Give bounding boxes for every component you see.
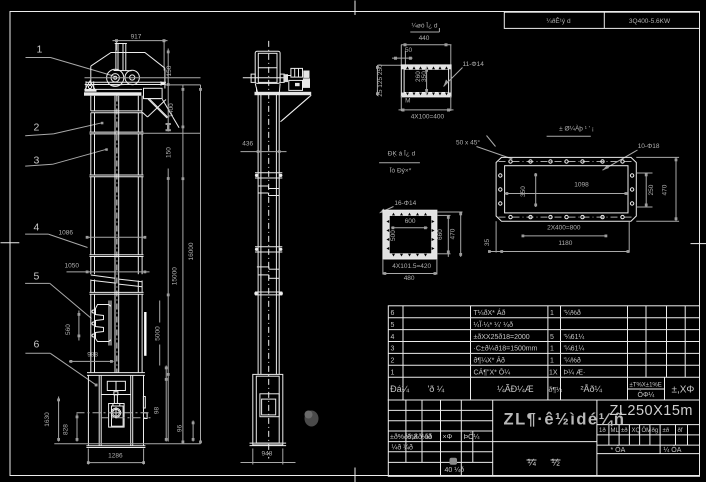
- svg-text:¼: ¼: [528, 457, 537, 469]
- svg-text:4: 4: [391, 334, 395, 341]
- svg-text:828: 828: [63, 424, 70, 435]
- svg-text:350: 350: [520, 186, 527, 197]
- svg-text:XQ: XQ: [632, 428, 641, 434]
- svg-text:T¼ðX* Áð: T¼ðX* Áð: [474, 308, 506, 317]
- svg-text:ZL250X15m: ZL250X15m: [610, 403, 694, 419]
- svg-text:2X400=800: 2X400=800: [547, 225, 581, 232]
- svg-text:2: 2: [34, 122, 40, 134]
- svg-text:'¼61¼: '¼61¼: [564, 346, 585, 353]
- svg-text:±ðXX25ð18=2000: ±ðXX25ð18=2000: [474, 333, 530, 341]
- svg-text:560: 560: [65, 324, 72, 335]
- svg-text:988: 988: [87, 352, 98, 359]
- svg-text:±T%X±1%E: ±T%X±1%E: [630, 383, 662, 389]
- svg-text:CÁ¶"X* Ô¼: CÁ¶"X* Ô¼: [474, 368, 511, 377]
- svg-text:6: 6: [34, 339, 40, 351]
- svg-text:1086: 1086: [59, 230, 74, 237]
- svg-text:1180: 1180: [558, 240, 572, 247]
- svg-text:ÞÔ¼: ÞÔ¼: [464, 432, 480, 441]
- svg-text:948: 948: [262, 451, 273, 458]
- svg-text:470: 470: [662, 184, 669, 195]
- svg-text:ÔΦ¼: ÔΦ¼: [638, 390, 655, 399]
- svg-text:98: 98: [154, 407, 161, 415]
- svg-text:ÔM: ÔM: [642, 427, 652, 434]
- svg-text:'¼%ð: '¼%ð: [564, 309, 581, 317]
- svg-text:4X101.5=420: 4X101.5=420: [392, 263, 431, 270]
- svg-text:'ð ¼: 'ð ¼: [428, 384, 445, 394]
- svg-text:1: 1: [550, 310, 554, 317]
- svg-text:436: 436: [242, 141, 253, 148]
- svg-text:* ÔA: * ÔA: [611, 445, 626, 454]
- svg-text:1: 1: [550, 358, 554, 365]
- svg-text:¼Ĩ·¼* ¼' ¼ð: ¼Ĩ·¼* ¼' ¼ð: [474, 320, 514, 329]
- svg-text:M: M: [405, 98, 410, 105]
- svg-text:ðf: ðf: [678, 427, 683, 434]
- svg-text:150: 150: [166, 65, 173, 76]
- svg-text:3: 3: [34, 155, 40, 167]
- svg-text:ð¶¼: ð¶¼: [549, 386, 563, 394]
- svg-text:4: 4: [34, 222, 40, 234]
- svg-text:¼øó Ī¿ d: ¼øó Ī¿ d: [411, 22, 437, 30]
- svg-text:35: 35: [484, 239, 491, 247]
- svg-text:2: 2: [391, 358, 395, 365]
- svg-text:15000: 15000: [172, 267, 179, 285]
- svg-text:5: 5: [550, 334, 554, 341]
- svg-text:ML: ML: [611, 428, 620, 434]
- svg-text:Īò Đý×*: Īò Đý×*: [390, 167, 412, 175]
- svg-text:500: 500: [390, 230, 397, 241]
- svg-text:50: 50: [405, 47, 413, 54]
- svg-text:¼ð ¼ð: ¼ð ¼ð: [392, 444, 414, 452]
- svg-text:1: 1: [391, 370, 395, 377]
- svg-text:1X: 1X: [549, 370, 558, 377]
- svg-text:470: 470: [450, 228, 457, 239]
- svg-text:150: 150: [165, 147, 172, 158]
- svg-text:16-Φ14: 16-Φ14: [394, 200, 416, 207]
- svg-text:½: ½: [552, 458, 561, 469]
- svg-text:ðg: ðg: [652, 427, 659, 434]
- svg-text:1098: 1098: [574, 182, 589, 189]
- svg-text:1050: 1050: [65, 263, 80, 270]
- svg-text:5000: 5000: [155, 326, 162, 341]
- svg-text:350: 350: [421, 71, 428, 82]
- svg-text:4X100=400: 4X100=400: [411, 114, 445, 121]
- svg-text:'¼61¼: '¼61¼: [564, 334, 585, 341]
- svg-text:40 ¼ð: 40 ¼ð: [445, 466, 465, 474]
- svg-text:6: 6: [391, 310, 395, 317]
- svg-text:50 x 45°: 50 x 45°: [456, 139, 480, 147]
- svg-text:250: 250: [648, 184, 655, 195]
- svg-text:16000: 16000: [188, 242, 195, 260]
- svg-text:'¼%ð: '¼%ð: [564, 357, 581, 365]
- svg-text:10-Φ18: 10-Φ18: [638, 143, 660, 150]
- svg-text:917: 917: [131, 34, 142, 41]
- svg-text:1ð: 1ð: [599, 427, 606, 434]
- svg-text:1400: 1400: [168, 103, 175, 118]
- svg-text:5: 5: [34, 271, 40, 283]
- svg-text:480: 480: [404, 275, 415, 282]
- svg-text:1630: 1630: [44, 412, 51, 427]
- svg-text:²Åð¼: ²Åð¼: [581, 384, 603, 394]
- svg-text:440: 440: [419, 35, 430, 42]
- svg-text:3Q400-5.6KW: 3Q400-5.6KW: [629, 18, 671, 25]
- svg-text:¼ðÊ¹ý d: ¼ðÊ¹ý d: [546, 16, 571, 25]
- svg-text:ZL¶·ê½ìdé¼ñ: ZL¶·ê½ìdé¼ñ: [504, 411, 626, 429]
- svg-text:·C±ð¼ð18=1500mm: ·C±ð¼ð18=1500mm: [474, 345, 538, 353]
- svg-text:ð¶¼X* Áð: ð¶¼X* Áð: [474, 356, 505, 365]
- svg-text:Þ¼ Æ·: Þ¼ Æ·: [564, 370, 586, 377]
- svg-text:1286: 1286: [108, 453, 123, 460]
- svg-text:¼ÃĐ¼Æ: ¼ÃĐ¼Æ: [497, 384, 534, 394]
- svg-text:25 125 250: 25 125 250: [377, 64, 384, 97]
- svg-text:3: 3: [391, 346, 395, 353]
- svg-text:660: 660: [437, 229, 444, 240]
- svg-text:11-Φ14: 11-Φ14: [463, 61, 485, 68]
- svg-text:¼ ÔA: ¼ ÔA: [664, 445, 682, 454]
- svg-text:ðð: ðð: [425, 433, 433, 441]
- svg-text:±ð: ±ð: [621, 427, 628, 434]
- svg-text:±,XΦ: ±,XΦ: [672, 385, 695, 396]
- svg-text:± Ø¼Àþ ¹ ' ¡: ± Ø¼Àþ ¹ ' ¡: [559, 124, 594, 133]
- svg-text:Đá¼: Đá¼: [390, 384, 410, 394]
- svg-text:5: 5: [391, 322, 395, 329]
- svg-text:1: 1: [550, 346, 554, 353]
- svg-text:1: 1: [37, 44, 43, 56]
- svg-text:600: 600: [405, 218, 416, 225]
- svg-text:×Φ: ×Φ: [443, 434, 453, 441]
- svg-text:ĐĶ á Ī¿ d: ĐĶ á Ī¿ d: [388, 150, 416, 158]
- svg-text:±ð: ±ð: [663, 427, 670, 434]
